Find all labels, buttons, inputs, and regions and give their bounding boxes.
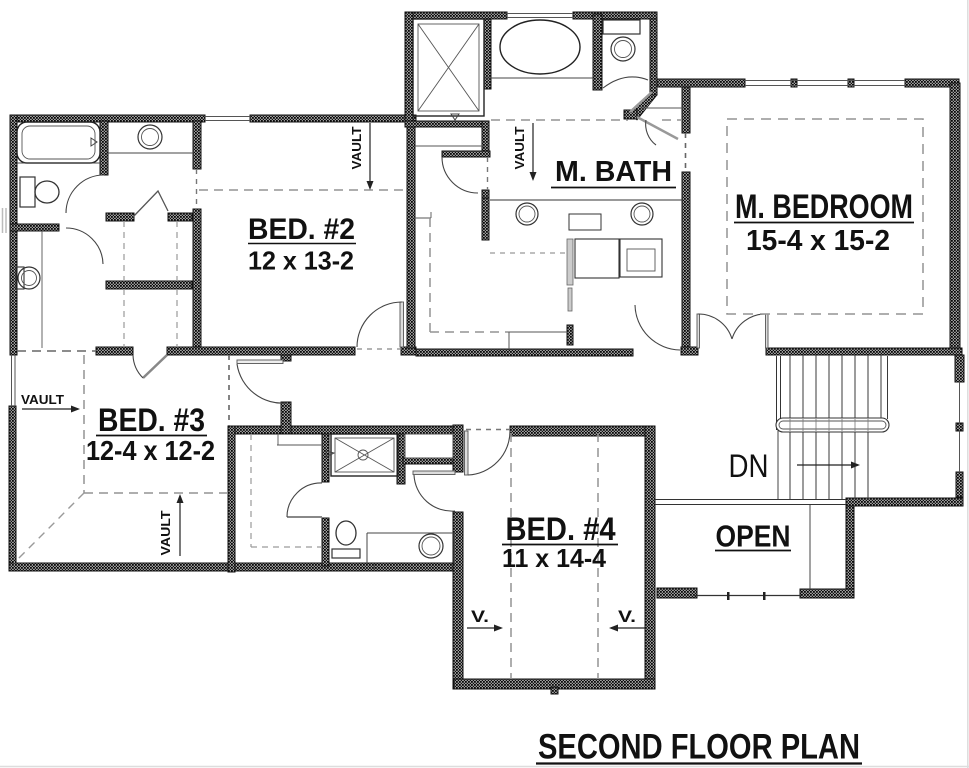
svg-text:SECOND FLOOR PLAN: SECOND FLOOR PLAN (538, 728, 860, 767)
svg-text:BED. #2: BED. #2 (248, 213, 355, 246)
svg-text:M. BEDROOM: M. BEDROOM (735, 188, 913, 226)
svg-text:DN: DN (729, 448, 769, 484)
svg-text:V.: V. (618, 607, 636, 626)
svg-text:VAULT: VAULT (512, 126, 527, 169)
svg-text:VAULT: VAULT (21, 392, 64, 407)
svg-text:OPEN: OPEN (716, 519, 791, 554)
svg-text:12-4 x 12-2: 12-4 x 12-2 (86, 435, 215, 466)
svg-text:15-4 x 15-2: 15-4 x 15-2 (746, 225, 890, 257)
svg-text:VAULT: VAULT (349, 126, 364, 169)
svg-text:BED. #3: BED. #3 (98, 402, 205, 438)
svg-text:VAULT: VAULT (158, 510, 173, 555)
svg-text:BED. #4: BED. #4 (506, 511, 616, 547)
svg-text:M. BATH: M. BATH (555, 156, 672, 188)
svg-text:12 x 13-2: 12 x 13-2 (248, 246, 354, 276)
svg-text:V.: V. (471, 607, 489, 626)
svg-text:11 x 14-4: 11 x 14-4 (502, 543, 607, 573)
